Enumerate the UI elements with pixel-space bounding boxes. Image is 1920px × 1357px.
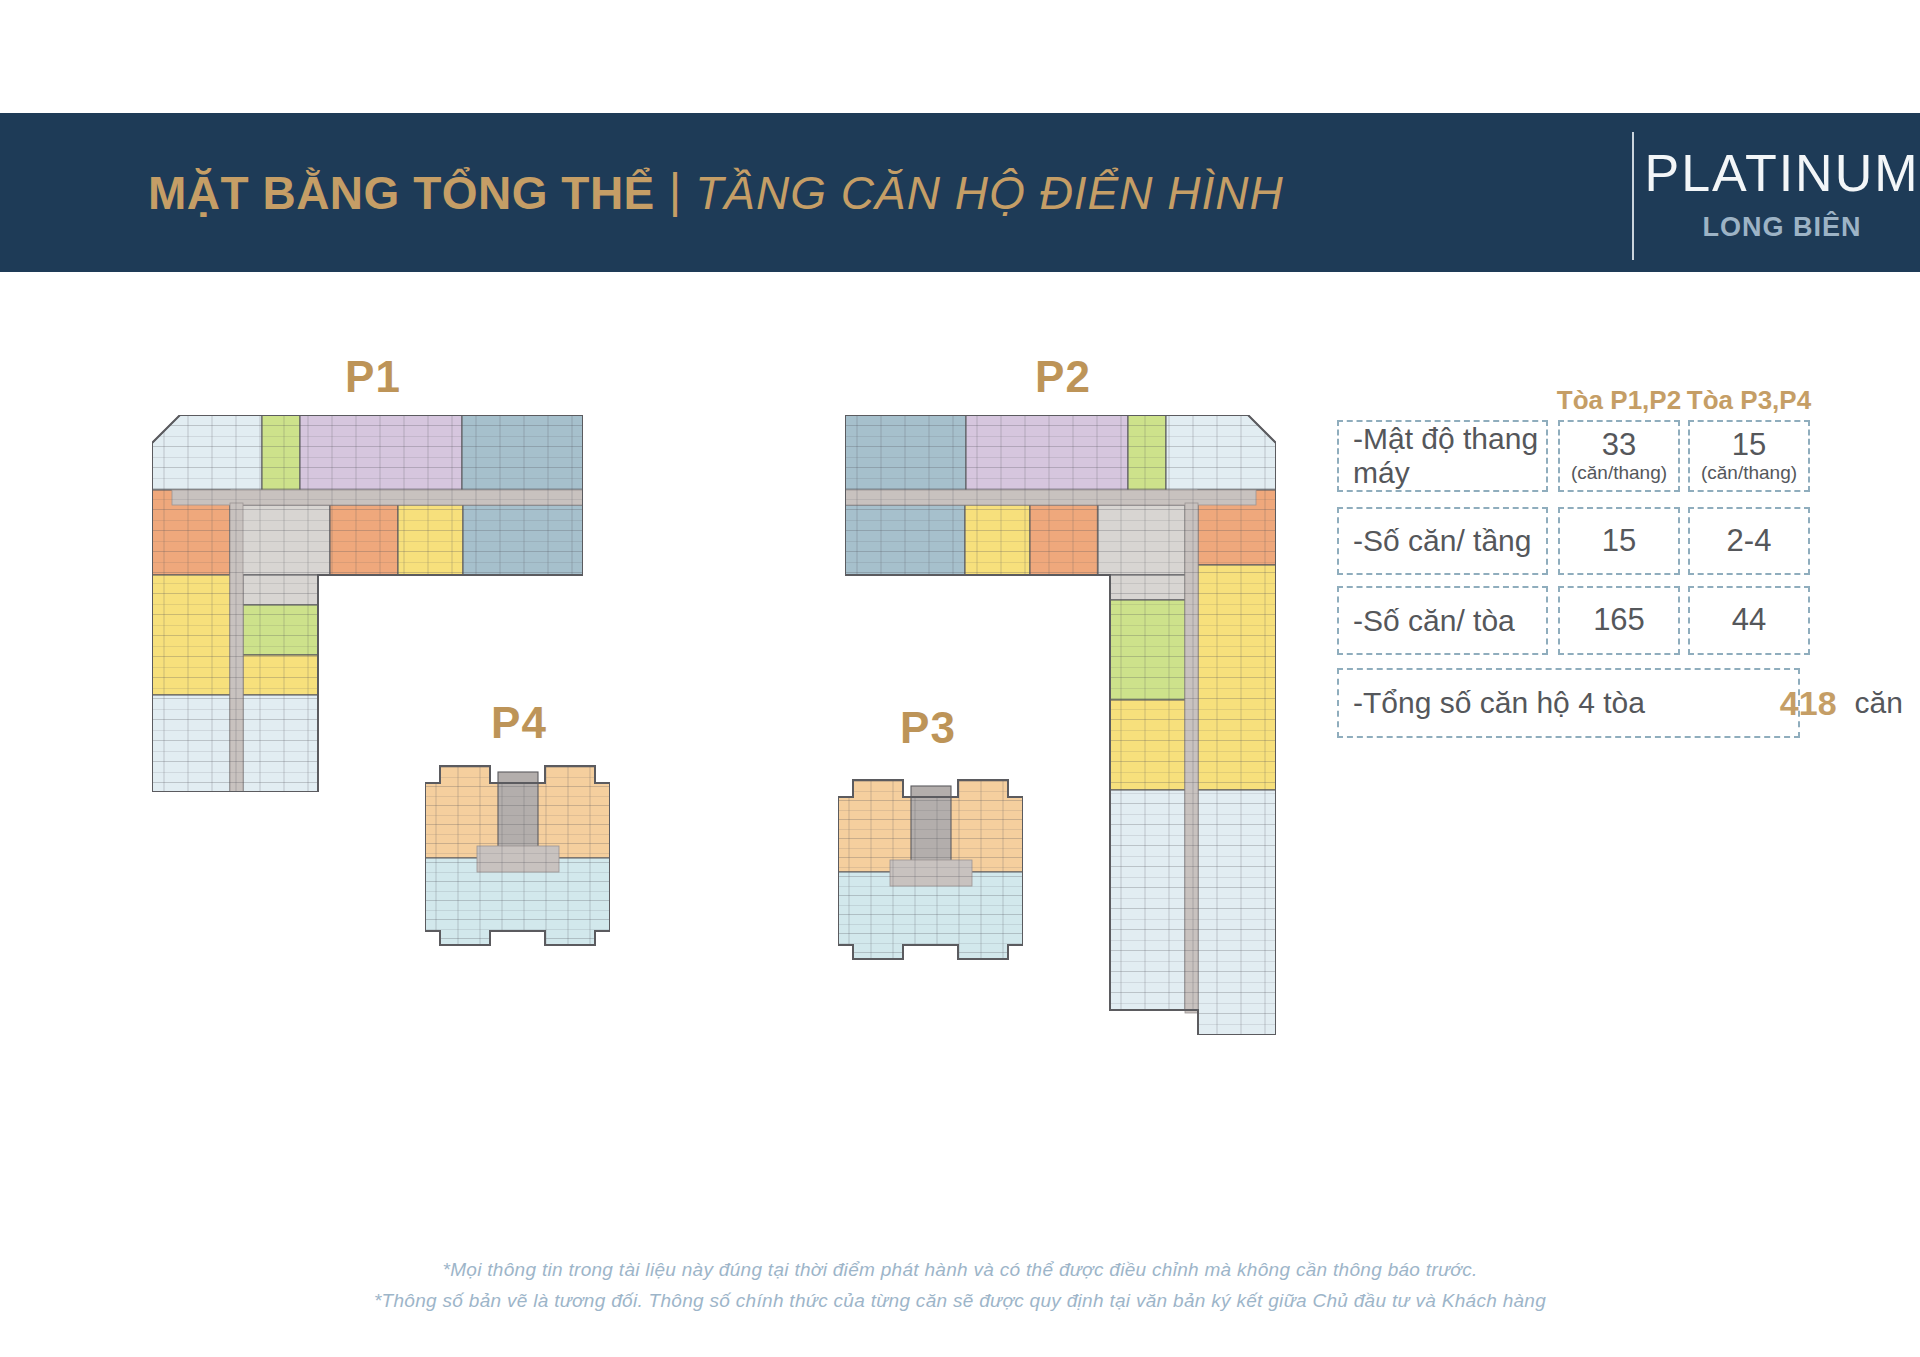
- row1-value2-main: 15: [1732, 429, 1766, 462]
- total-value: 418: [1780, 684, 1837, 723]
- page-title-sub: TẦNG CĂN HỘ ĐIỂN HÌNH: [695, 166, 1283, 220]
- row2-value-main: 15: [1602, 525, 1636, 558]
- brand-divider-line: [1632, 132, 1634, 260]
- row3-value-main: 165: [1593, 604, 1645, 637]
- table-row1-value-p1p2: 33 (căn/thang): [1558, 420, 1680, 492]
- building-label-p2: P2: [1013, 352, 1113, 402]
- brand-name: PLATINUM: [1644, 143, 1919, 203]
- table-row3-value-p1p2: 165: [1558, 586, 1680, 655]
- row3-value2-main: 44: [1732, 604, 1766, 637]
- table-row2-label: -Số căn/ tầng: [1337, 507, 1548, 575]
- building-label-p1: P1: [323, 352, 423, 402]
- row1-value-main: 33: [1602, 429, 1636, 462]
- table-row1-label: -Mật độ thang máy: [1337, 420, 1548, 492]
- page-title: MẶT BẰNG TỔNG THỂ | TẦNG CĂN HỘ ĐIỂN HÌN…: [148, 113, 1284, 272]
- page-title-main: MẶT BẰNG TỔNG THỂ: [148, 166, 655, 220]
- table-row3-value-p3p4: 44: [1688, 586, 1810, 655]
- table-col-header-p3p4: Tòa P3,P4: [1688, 385, 1810, 415]
- row1-value-unit: (căn/thang): [1571, 463, 1667, 483]
- row2-value2-main: 2-4: [1727, 525, 1772, 558]
- total-label: -Tổng số căn hộ 4 tòa: [1353, 686, 1645, 720]
- brand-logo: PLATINUM LONG BIÊN: [1650, 113, 1914, 272]
- table-row1-value-p3p4: 15 (căn/thang): [1688, 420, 1810, 492]
- table-row2-value-p1p2: 15: [1558, 507, 1680, 575]
- row1-value2-unit: (căn/thang): [1701, 463, 1797, 483]
- p3-room-lines: [838, 772, 1023, 964]
- p4-room-lines: [425, 758, 610, 950]
- brand-subtitle: LONG BIÊN: [1702, 212, 1861, 243]
- footer-disclaimer-line2: *Thông số bản vẽ là tương đối. Thông số …: [0, 1290, 1920, 1312]
- title-separator: |: [669, 163, 681, 218]
- table-col-header-p1p2: Tòa P1,P2: [1558, 385, 1680, 415]
- total-unit: căn: [1855, 686, 1903, 720]
- table-row2-value-p3p4: 2-4: [1688, 507, 1810, 575]
- header-bar: MẶT BẰNG TỔNG THỂ | TẦNG CĂN HỘ ĐIỂN HÌN…: [0, 113, 1920, 272]
- p4-floor-plan: [425, 758, 610, 950]
- table-row3-label: -Số căn/ tòa: [1337, 586, 1548, 655]
- p3-floor-plan: [838, 772, 1023, 964]
- p1-floor-plan: [152, 415, 583, 792]
- footer-disclaimer-line1: *Mọi thông tin trong tài liệu này đúng t…: [0, 1259, 1920, 1281]
- p1-room-lines: [152, 415, 583, 792]
- table-total-row: -Tổng số căn hộ 4 tòa 418 căn: [1337, 668, 1800, 738]
